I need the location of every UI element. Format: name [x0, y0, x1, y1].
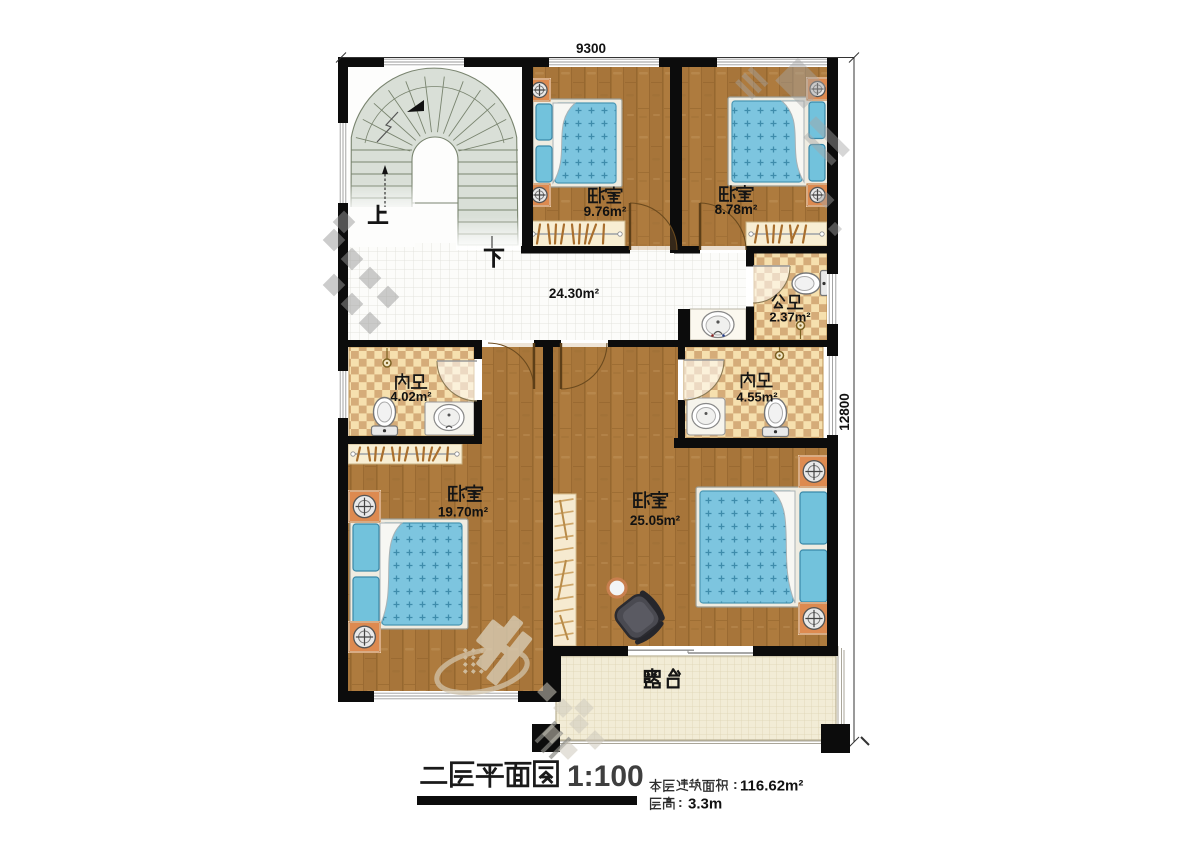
svg-text:4.55m²: 4.55m² [736, 390, 778, 405]
svg-text::: : [733, 776, 738, 792]
svg-text:19.70m²: 19.70m² [438, 505, 489, 520]
svg-text:8.78m²: 8.78m² [715, 202, 758, 217]
svg-text:25.05m²: 25.05m² [630, 513, 681, 528]
svg-text:3.3m: 3.3m [688, 796, 722, 813]
svg-text:9.76m²: 9.76m² [584, 204, 627, 219]
svg-text:116.62m²: 116.62m² [740, 778, 803, 795]
svg-text::: : [678, 794, 683, 810]
svg-text:4.02m²: 4.02m² [390, 389, 432, 404]
svg-text:12800: 12800 [837, 393, 852, 431]
svg-text:9300: 9300 [576, 41, 606, 56]
svg-text:2.37m²: 2.37m² [769, 310, 811, 325]
svg-text:1:100: 1:100 [567, 760, 644, 793]
svg-text:24.30m²: 24.30m² [549, 286, 600, 301]
